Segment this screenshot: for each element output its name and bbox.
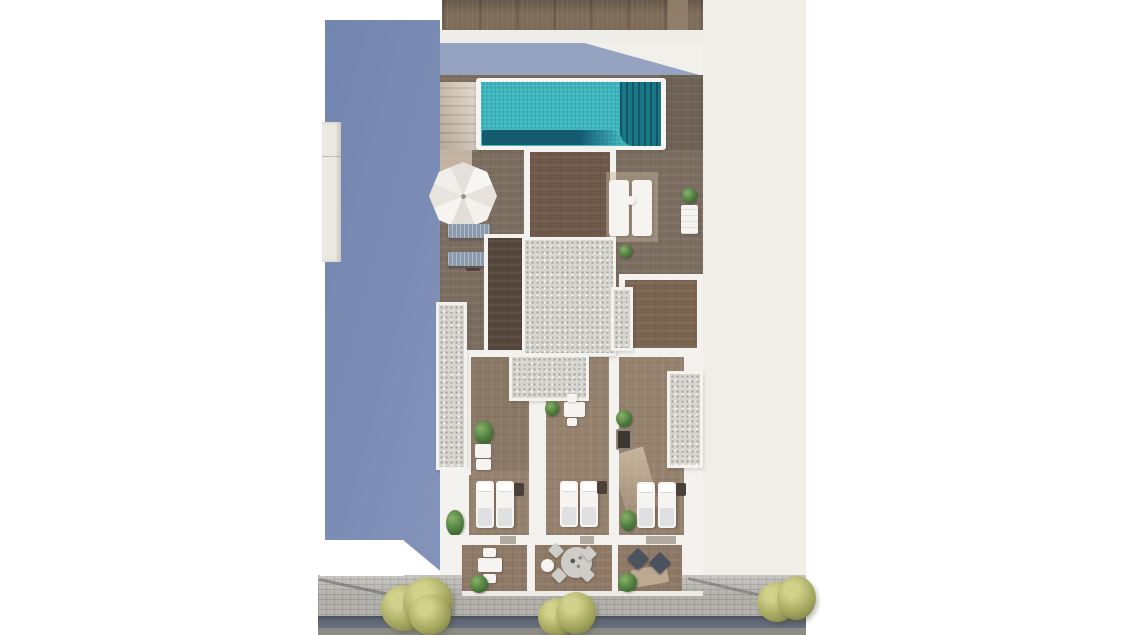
left-room-pot [475,444,491,458]
bed-pillow [498,483,512,492]
bed-middle-2 [580,481,598,527]
gravel-roof-left-strip [436,302,467,470]
pool-bottom-shadow [482,130,622,145]
lounger-foot-shadow [466,268,480,271]
street-tree-3 [757,576,816,629]
shaded-roof-band [440,43,703,76]
right-terrace-plant [618,573,637,592]
center-room-floor [530,152,610,238]
right-room-edge-plant [620,510,636,531]
left-terrace-plant [470,575,488,593]
tree-canopy [409,595,451,635]
deck-shelf [681,205,698,234]
bed-pillow [562,483,576,492]
right-room-dark-table [616,429,632,450]
tree-canopy [556,592,596,634]
bed-pillow [660,484,674,493]
middle-room-table [564,402,585,417]
shade-trapezoid [440,43,703,76]
terrace-divider-wall-2 [612,535,618,595]
bed-blanket [498,508,512,526]
terrace-door-gap-1 [500,536,516,544]
left-terrace-table [478,558,502,572]
bed-blanket [639,508,653,526]
bed-pillow [582,483,596,492]
ambient-ground [703,0,806,635]
left-terrace-chair-1 [483,548,496,557]
storage-room-floor [488,238,525,354]
gravel-roof-center-tab [611,287,633,351]
upper-right-room-floor [625,280,697,348]
west-planter-plant [446,510,464,536]
gravel-roof-center-lower [509,354,589,401]
pool-deep-end [620,82,661,146]
middle-room-chair-top [567,394,577,402]
terrace-ottoman [541,559,554,572]
terrace-door-gap-3 [646,536,676,544]
terrace-outer-wall-right [682,535,703,575]
roof-structure-divider [322,156,341,157]
bed-left-1 [476,481,494,528]
terrace-divider-wall-1 [527,535,535,595]
nightstand-middle [597,481,607,494]
pool-stairs [440,82,478,150]
terrace-door-gap-2 [580,536,594,544]
gravel-roof-center-main [522,237,616,356]
top-roof-light-strip [668,0,688,30]
deck-corner-plant [619,245,632,258]
deck-dark-patch [661,75,703,151]
white-sun-lounger-1 [609,180,629,236]
gravel-roof-right-strip [667,371,703,468]
tree-canopy [777,576,816,620]
left-room-chair [476,459,491,470]
left-room-plant [474,421,493,444]
bed-pillow [639,484,653,493]
bed-right-2 [658,482,676,528]
parasol-pole [461,194,466,199]
deck-ball-plant [682,188,697,203]
bed-blanket [660,508,674,526]
middle-room-chair-bottom [567,418,577,426]
bed-blanket [582,507,596,525]
middle-room-plant [545,401,559,416]
street-tree-2 [538,592,596,635]
neighbor-roof-structure [322,122,341,262]
lounger-side-table [626,196,635,205]
white-sun-lounger-2 [632,180,652,236]
bed-middle-1 [560,481,578,527]
bed-right-1 [637,482,655,528]
bed-blanket [562,507,576,525]
north-wall-band [440,30,703,44]
neighbor-corner-cut [320,540,404,576]
right-room-plant [616,410,632,427]
adjacent-top-roof [442,0,703,30]
bed-blanket [478,508,492,526]
nightstand-left [514,483,524,496]
bed-pillow [478,483,492,492]
terrace-outer-wall-left [440,535,462,575]
aerial-render-scene [0,0,1130,635]
bed-left-2 [496,481,514,528]
nightstand-right [676,483,686,496]
neighbor-building-roof [325,20,440,573]
parasol-umbrella [429,162,497,230]
street-tree-1 [381,577,455,635]
